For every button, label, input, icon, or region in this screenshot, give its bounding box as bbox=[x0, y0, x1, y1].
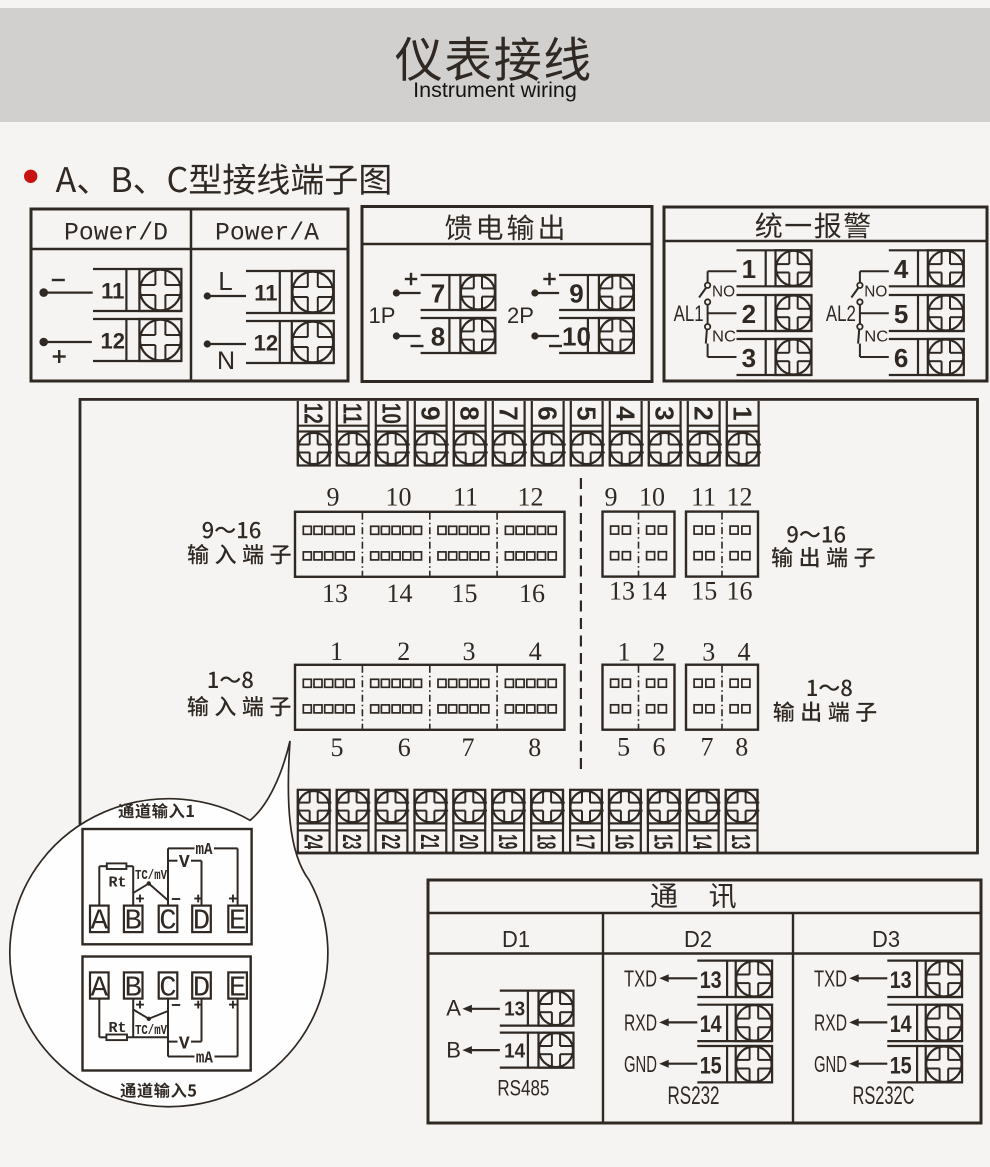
svg-text:7: 7 bbox=[701, 733, 714, 762]
svg-text:N: N bbox=[217, 347, 235, 375]
svg-text:11: 11 bbox=[101, 278, 124, 303]
svg-text:2P: 2P bbox=[507, 303, 534, 328]
svg-text:TC/mV: TC/mV bbox=[135, 1023, 167, 1039]
svg-text:14: 14 bbox=[387, 579, 413, 608]
svg-text:6: 6 bbox=[894, 343, 908, 373]
svg-text:RS485: RS485 bbox=[497, 1076, 549, 1101]
svg-text:14: 14 bbox=[700, 1011, 723, 1038]
svg-text:3: 3 bbox=[702, 638, 715, 667]
svg-text:Rt: Rt bbox=[108, 1020, 126, 1037]
svg-text:5: 5 bbox=[571, 406, 601, 420]
svg-text:21: 21 bbox=[415, 834, 445, 849]
svg-text:RS232: RS232 bbox=[668, 1082, 720, 1110]
svg-text:11: 11 bbox=[453, 483, 478, 512]
svg-text:14: 14 bbox=[504, 1041, 526, 1063]
svg-text:13: 13 bbox=[504, 999, 525, 1021]
svg-text:RXD: RXD bbox=[624, 1010, 657, 1036]
svg-text:mA: mA bbox=[196, 1049, 214, 1068]
svg-text:7: 7 bbox=[431, 278, 445, 308]
svg-text:8: 8 bbox=[528, 733, 541, 762]
svg-text:NC: NC bbox=[712, 329, 736, 346]
svg-text:6: 6 bbox=[653, 733, 666, 762]
svg-text:2: 2 bbox=[742, 299, 756, 329]
svg-text:3: 3 bbox=[742, 343, 756, 373]
svg-text:1: 1 bbox=[742, 254, 756, 284]
svg-text:L: L bbox=[218, 266, 232, 296]
svg-text:5: 5 bbox=[617, 733, 630, 762]
svg-text:20: 20 bbox=[454, 834, 484, 849]
svg-text:10: 10 bbox=[639, 483, 665, 512]
svg-text:12: 12 bbox=[298, 403, 328, 424]
svg-text:8: 8 bbox=[431, 321, 445, 351]
svg-text:13: 13 bbox=[609, 576, 635, 605]
svg-text:16: 16 bbox=[727, 576, 753, 605]
svg-text:3: 3 bbox=[649, 406, 679, 420]
svg-text:2: 2 bbox=[397, 637, 410, 666]
svg-text:1: 1 bbox=[618, 638, 631, 667]
svg-text:4: 4 bbox=[610, 406, 640, 421]
svg-text:TC/mV: TC/mV bbox=[135, 868, 167, 884]
svg-text:13: 13 bbox=[322, 579, 348, 608]
svg-text:8: 8 bbox=[735, 733, 748, 762]
svg-text:16: 16 bbox=[519, 579, 545, 608]
svg-text:5: 5 bbox=[894, 299, 908, 329]
svg-text:D1: D1 bbox=[502, 926, 530, 952]
svg-text:12: 12 bbox=[254, 330, 278, 355]
svg-text:14: 14 bbox=[641, 576, 667, 605]
svg-text:GND: GND bbox=[624, 1051, 657, 1077]
svg-text:15: 15 bbox=[691, 576, 717, 605]
svg-text:Power/A: Power/A bbox=[215, 218, 319, 247]
svg-text:B: B bbox=[124, 905, 141, 938]
svg-text:6: 6 bbox=[532, 406, 562, 420]
svg-text:15: 15 bbox=[452, 579, 478, 608]
svg-text:6: 6 bbox=[398, 733, 411, 762]
svg-text:11: 11 bbox=[337, 403, 367, 424]
svg-text:NO: NO bbox=[712, 284, 735, 301]
svg-text:V: V bbox=[179, 853, 190, 873]
svg-text:9: 9 bbox=[569, 278, 583, 308]
svg-text:4: 4 bbox=[529, 637, 542, 666]
svg-text:7: 7 bbox=[462, 733, 475, 762]
svg-text:AL1: AL1 bbox=[674, 301, 704, 326]
svg-text:7: 7 bbox=[493, 406, 523, 420]
svg-text:12: 12 bbox=[100, 328, 124, 353]
svg-text:A: A bbox=[91, 905, 109, 938]
svg-text:NC: NC bbox=[864, 329, 888, 346]
svg-text:RS232C: RS232C bbox=[853, 1082, 915, 1110]
svg-text:10: 10 bbox=[376, 403, 406, 424]
svg-text:9: 9 bbox=[605, 483, 618, 512]
svg-text:mA: mA bbox=[196, 841, 214, 860]
svg-text:AL2: AL2 bbox=[826, 301, 856, 326]
svg-text:17: 17 bbox=[571, 834, 601, 849]
svg-text:14: 14 bbox=[687, 834, 717, 849]
svg-text:Rt: Rt bbox=[108, 875, 126, 892]
svg-text:9: 9 bbox=[327, 483, 340, 512]
svg-text:V: V bbox=[179, 1034, 190, 1054]
svg-text:4: 4 bbox=[738, 638, 751, 667]
svg-text:19: 19 bbox=[493, 834, 523, 849]
svg-text:B: B bbox=[446, 1038, 461, 1063]
svg-text:11: 11 bbox=[691, 483, 716, 512]
svg-text:13: 13 bbox=[726, 834, 756, 849]
svg-text:D2: D2 bbox=[684, 926, 712, 952]
svg-text:10: 10 bbox=[562, 321, 591, 351]
svg-text:4: 4 bbox=[894, 254, 909, 284]
svg-text:9: 9 bbox=[415, 406, 445, 420]
svg-text:15: 15 bbox=[890, 1052, 912, 1079]
svg-text:14: 14 bbox=[890, 1011, 913, 1038]
svg-text:TXD: TXD bbox=[624, 965, 657, 991]
svg-text:12: 12 bbox=[727, 483, 753, 512]
svg-text:23: 23 bbox=[337, 834, 367, 849]
svg-text:15: 15 bbox=[648, 834, 678, 849]
svg-text:Power/D: Power/D bbox=[64, 218, 168, 247]
svg-text:RXD: RXD bbox=[814, 1010, 847, 1036]
svg-text:11: 11 bbox=[254, 280, 277, 305]
svg-text:D3: D3 bbox=[872, 926, 900, 952]
svg-text:5: 5 bbox=[331, 733, 344, 762]
svg-text:1: 1 bbox=[727, 406, 757, 420]
svg-text:16: 16 bbox=[610, 834, 640, 849]
svg-text:12: 12 bbox=[518, 483, 544, 512]
svg-text:10: 10 bbox=[386, 483, 412, 512]
svg-text:NO: NO bbox=[864, 284, 887, 301]
svg-text:D: D bbox=[193, 905, 210, 938]
svg-text:18: 18 bbox=[532, 834, 562, 849]
svg-text:GND: GND bbox=[814, 1051, 847, 1077]
svg-text:15: 15 bbox=[700, 1052, 722, 1079]
svg-text:3: 3 bbox=[463, 637, 476, 666]
svg-text:1: 1 bbox=[330, 637, 343, 666]
svg-text:C: C bbox=[159, 905, 176, 938]
svg-text:13: 13 bbox=[890, 967, 912, 994]
svg-text:2: 2 bbox=[652, 638, 665, 667]
svg-text:TXD: TXD bbox=[814, 965, 847, 991]
svg-text:2: 2 bbox=[688, 406, 718, 420]
svg-text:A: A bbox=[446, 996, 461, 1021]
svg-text:13: 13 bbox=[700, 967, 722, 994]
svg-text:1P: 1P bbox=[369, 303, 396, 328]
svg-text:24: 24 bbox=[298, 834, 328, 849]
svg-text:8: 8 bbox=[454, 406, 484, 420]
svg-text:22: 22 bbox=[376, 834, 406, 849]
svg-text:E: E bbox=[229, 905, 246, 938]
